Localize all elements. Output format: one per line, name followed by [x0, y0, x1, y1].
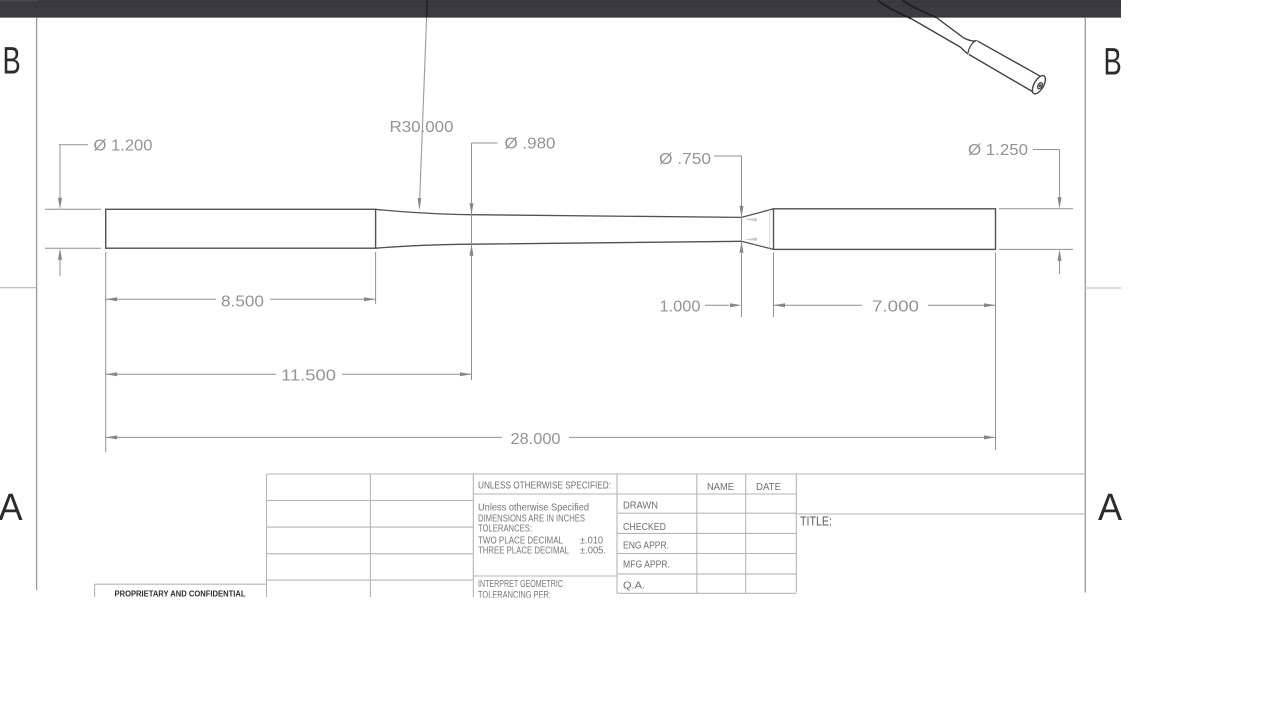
svg-text:B: B: [1104, 41, 1122, 83]
svg-text:NAME: NAME: [707, 482, 734, 493]
svg-text:DATE: DATE: [756, 482, 781, 493]
svg-text:Q.A.: Q.A.: [623, 580, 645, 591]
svg-text:DRAWN: DRAWN: [623, 501, 658, 512]
svg-text:Ø 1.250: Ø 1.250: [968, 142, 1028, 159]
svg-text:1.000: 1.000: [660, 298, 701, 315]
svg-text:ENG APPR.: ENG APPR.: [623, 540, 669, 551]
svg-text:Unless otherwise Specified: Unless otherwise Specified: [478, 502, 589, 513]
svg-text:A: A: [0, 485, 23, 528]
svg-text:A: A: [1098, 485, 1122, 528]
svg-text:B: B: [3, 40, 21, 82]
svg-text:TOLERANCES:: TOLERANCES:: [478, 524, 532, 535]
svg-text:PROPRIETARY AND CONFIDENTIAL: PROPRIETARY AND CONFIDENTIAL: [115, 590, 246, 599]
svg-text:11.500: 11.500: [281, 368, 336, 385]
svg-text:CHECKED: CHECKED: [623, 522, 666, 533]
svg-text:MFG APPR.: MFG APPR.: [623, 559, 670, 570]
svg-text:7.000: 7.000: [872, 298, 919, 315]
svg-text:TITLE:: TITLE:: [800, 514, 832, 529]
svg-text:INTERPRET GEOMETRIC: INTERPRET GEOMETRIC: [478, 579, 563, 590]
svg-text:Ø 1.200: Ø 1.200: [94, 138, 153, 155]
svg-text:Ø .980: Ø .980: [505, 135, 556, 152]
svg-text:±.005.: ±.005.: [580, 545, 606, 556]
svg-text:28.000: 28.000: [511, 431, 561, 448]
svg-text:Ø .750: Ø .750: [659, 151, 711, 168]
svg-text:UNLESS OTHERWISE SPECIFIED:: UNLESS OTHERWISE SPECIFIED:: [478, 480, 611, 491]
svg-text:THREE PLACE DECIMAL: THREE PLACE DECIMAL: [478, 545, 569, 556]
svg-text:8.500: 8.500: [221, 294, 264, 311]
svg-text:R30.000: R30.000: [390, 119, 454, 136]
